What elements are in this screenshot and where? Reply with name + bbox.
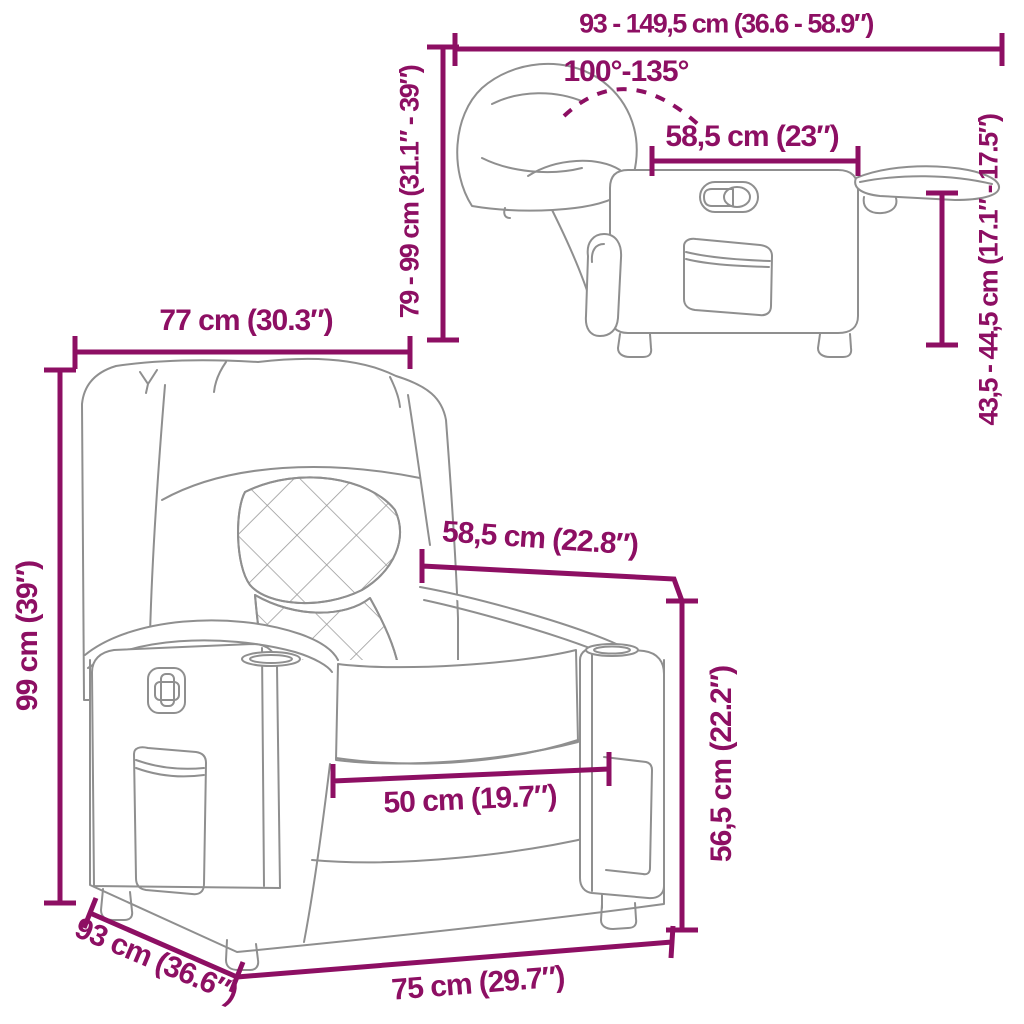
- front-seat-height-label: 56,5 cm (22.2″): [707, 666, 737, 862]
- front-height-dimension: [44, 370, 76, 903]
- recline-angle-label: 100°-135°: [563, 57, 688, 87]
- side-release-handle: [700, 182, 758, 212]
- front-view-drawing: [82, 359, 664, 970]
- recliner-dimension-diagram: 93 - 149,5 cm (36.6 - 58.9″) 79 - 99 cm …: [0, 0, 1024, 1024]
- side-height-dimension: [427, 47, 459, 340]
- footrest-height-dimension: [926, 193, 958, 345]
- side-foot: [618, 334, 651, 357]
- front-seat-depth-dimension: [422, 549, 698, 601]
- front-width-label: 77 cm (30.3″): [159, 306, 332, 336]
- side-seat-depth-label: 58,5 cm (23″): [665, 122, 838, 152]
- front-seat-height-dimension: [666, 601, 698, 930]
- seat-width-label: 50 cm (19.7″): [383, 781, 557, 819]
- side-armrest: [586, 234, 621, 336]
- front-seat: [336, 650, 578, 763]
- front-height-label: 99 cm (39″): [13, 561, 43, 711]
- footrest-height-label: 43,5 - 44,5 cm (17.1″ - 17.5″): [976, 114, 1003, 425]
- front-release-handle: [148, 668, 185, 713]
- side-foot: [818, 334, 851, 357]
- side-height-range-label: 79 - 99 cm (31.1″ - 39″): [397, 66, 424, 319]
- diagram-line-art: [0, 0, 1024, 1024]
- side-extended-length-label: 93 - 149,5 cm (36.6 - 58.9″): [579, 11, 873, 38]
- side-view-drawing: [457, 64, 999, 357]
